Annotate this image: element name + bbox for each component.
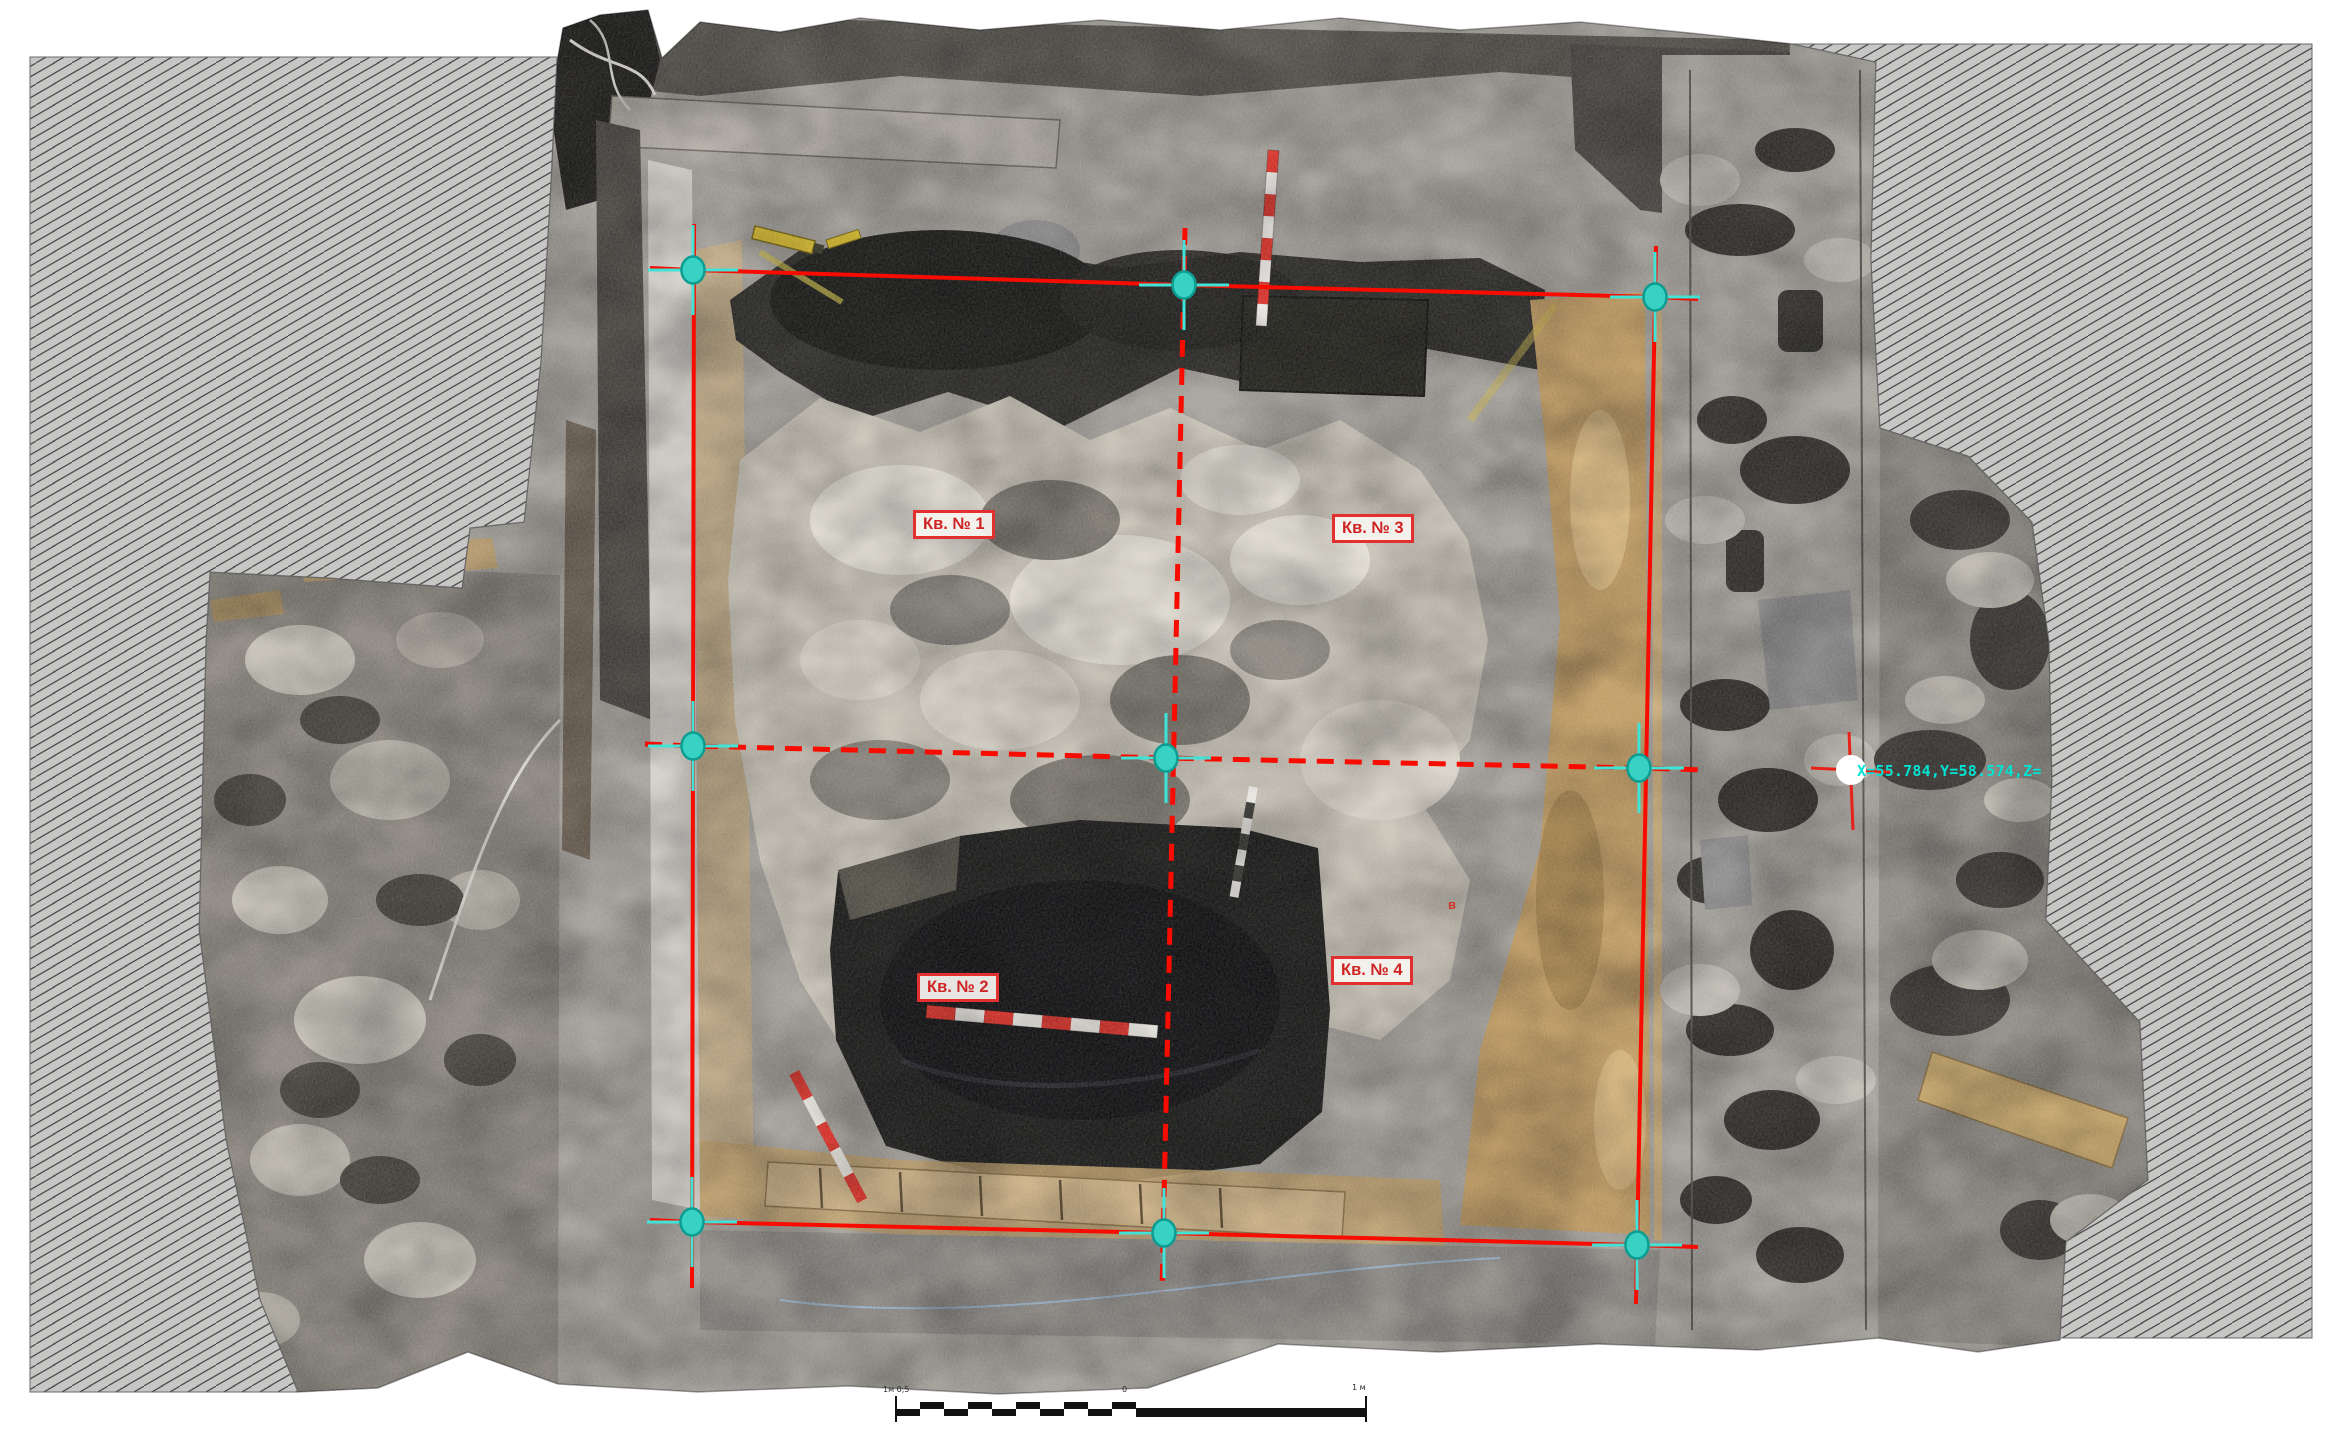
quadrant-label-2: Кв. № 2 [917, 973, 999, 1002]
scale-bar-left-label: 1м 0,5 [883, 1386, 909, 1394]
quadrant-label-4: Кв. № 4 [1331, 956, 1413, 985]
orthophoto-plan-page: Кв. № 1 Кв. № 2 Кв. № 3 Кв. № 4 X=55.784… [0, 0, 2325, 1443]
quadrant-label-1: Кв. № 1 [913, 510, 995, 539]
plan-canvas [0, 0, 2325, 1443]
coordinate-readout: X=55.784,Y=58.574,Z= [1857, 762, 2042, 780]
quadrant-label-3: Кв. № 3 [1332, 514, 1414, 543]
scale-bar-right-label: 1 м [1352, 1384, 1366, 1392]
scale-bar-zero-label: 0 [1122, 1386, 1127, 1394]
point-mark: в [1448, 897, 1456, 912]
scale-bar [896, 1396, 1366, 1422]
